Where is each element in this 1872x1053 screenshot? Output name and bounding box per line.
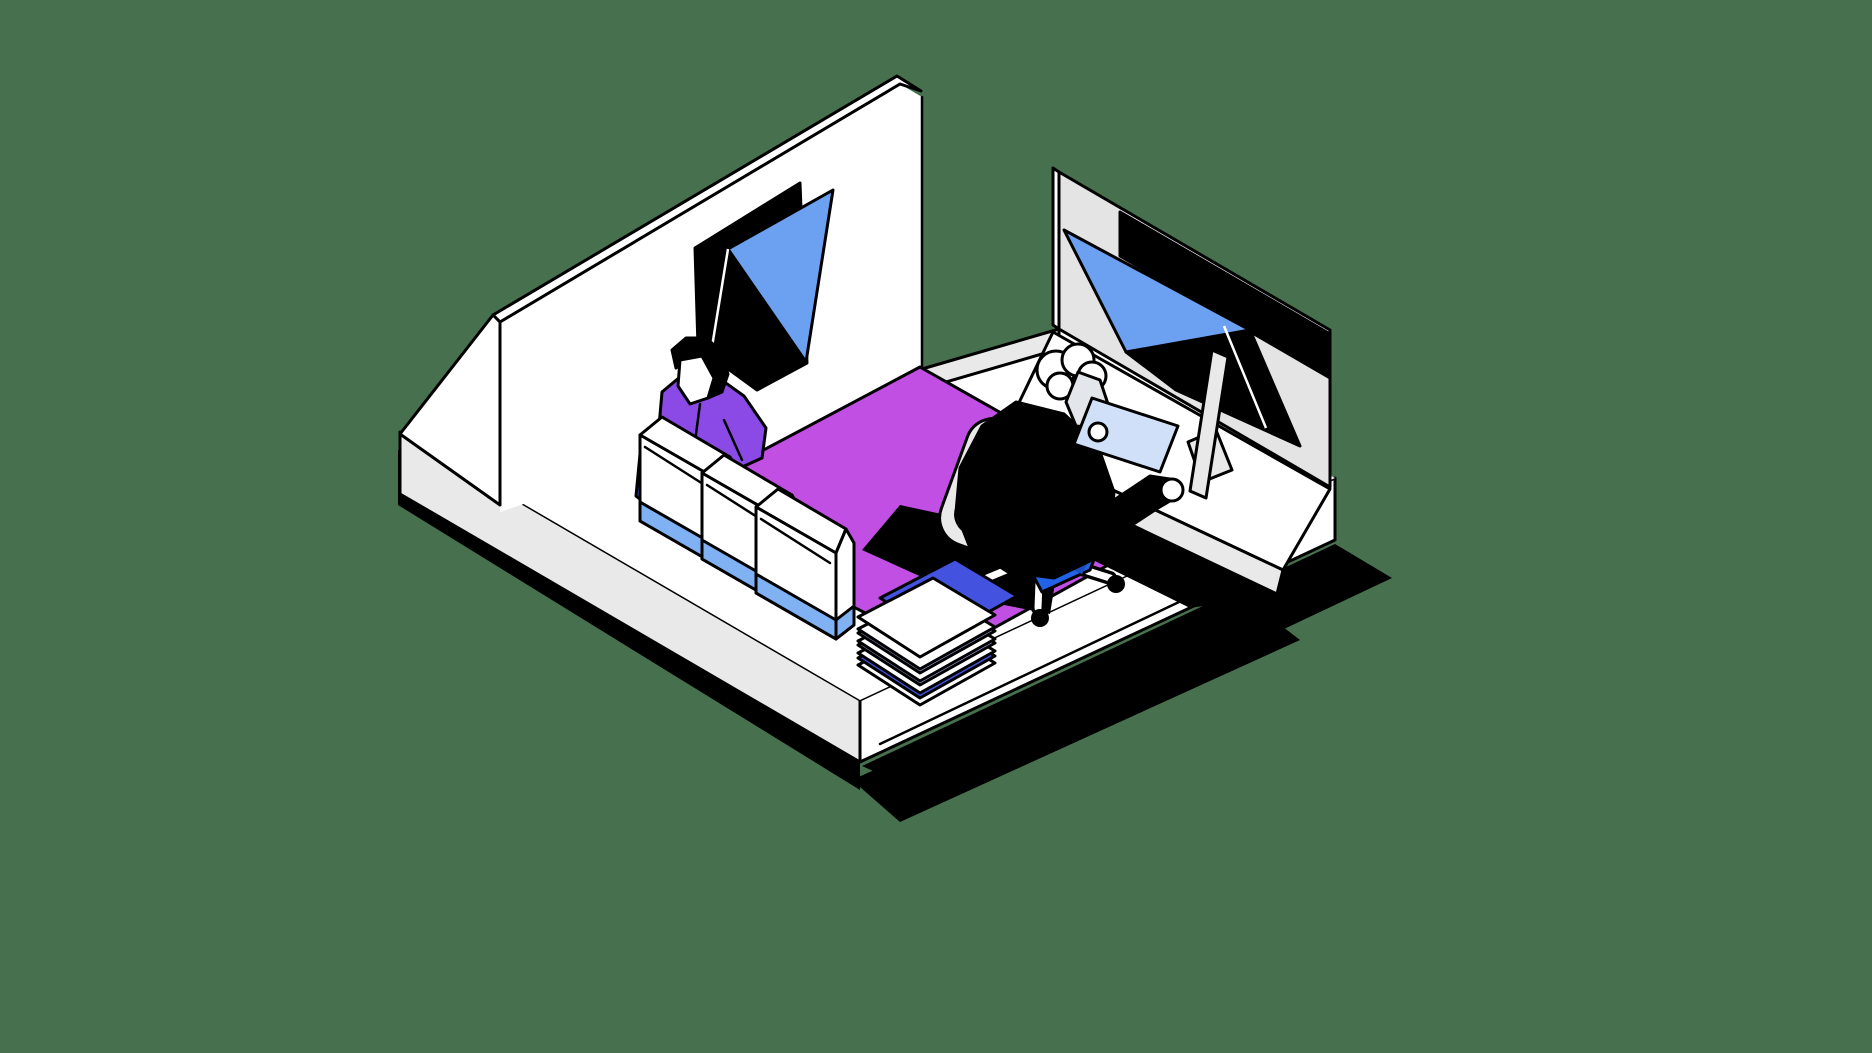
chair-wheel-right [1107, 575, 1125, 593]
seated-person-hand-on-paper [1089, 423, 1107, 441]
isometric-office-illustration [0, 0, 1872, 1053]
illustration-stage [0, 0, 1872, 1053]
chair-wheel-front [1031, 609, 1049, 627]
seated-person-hand [1161, 479, 1183, 501]
